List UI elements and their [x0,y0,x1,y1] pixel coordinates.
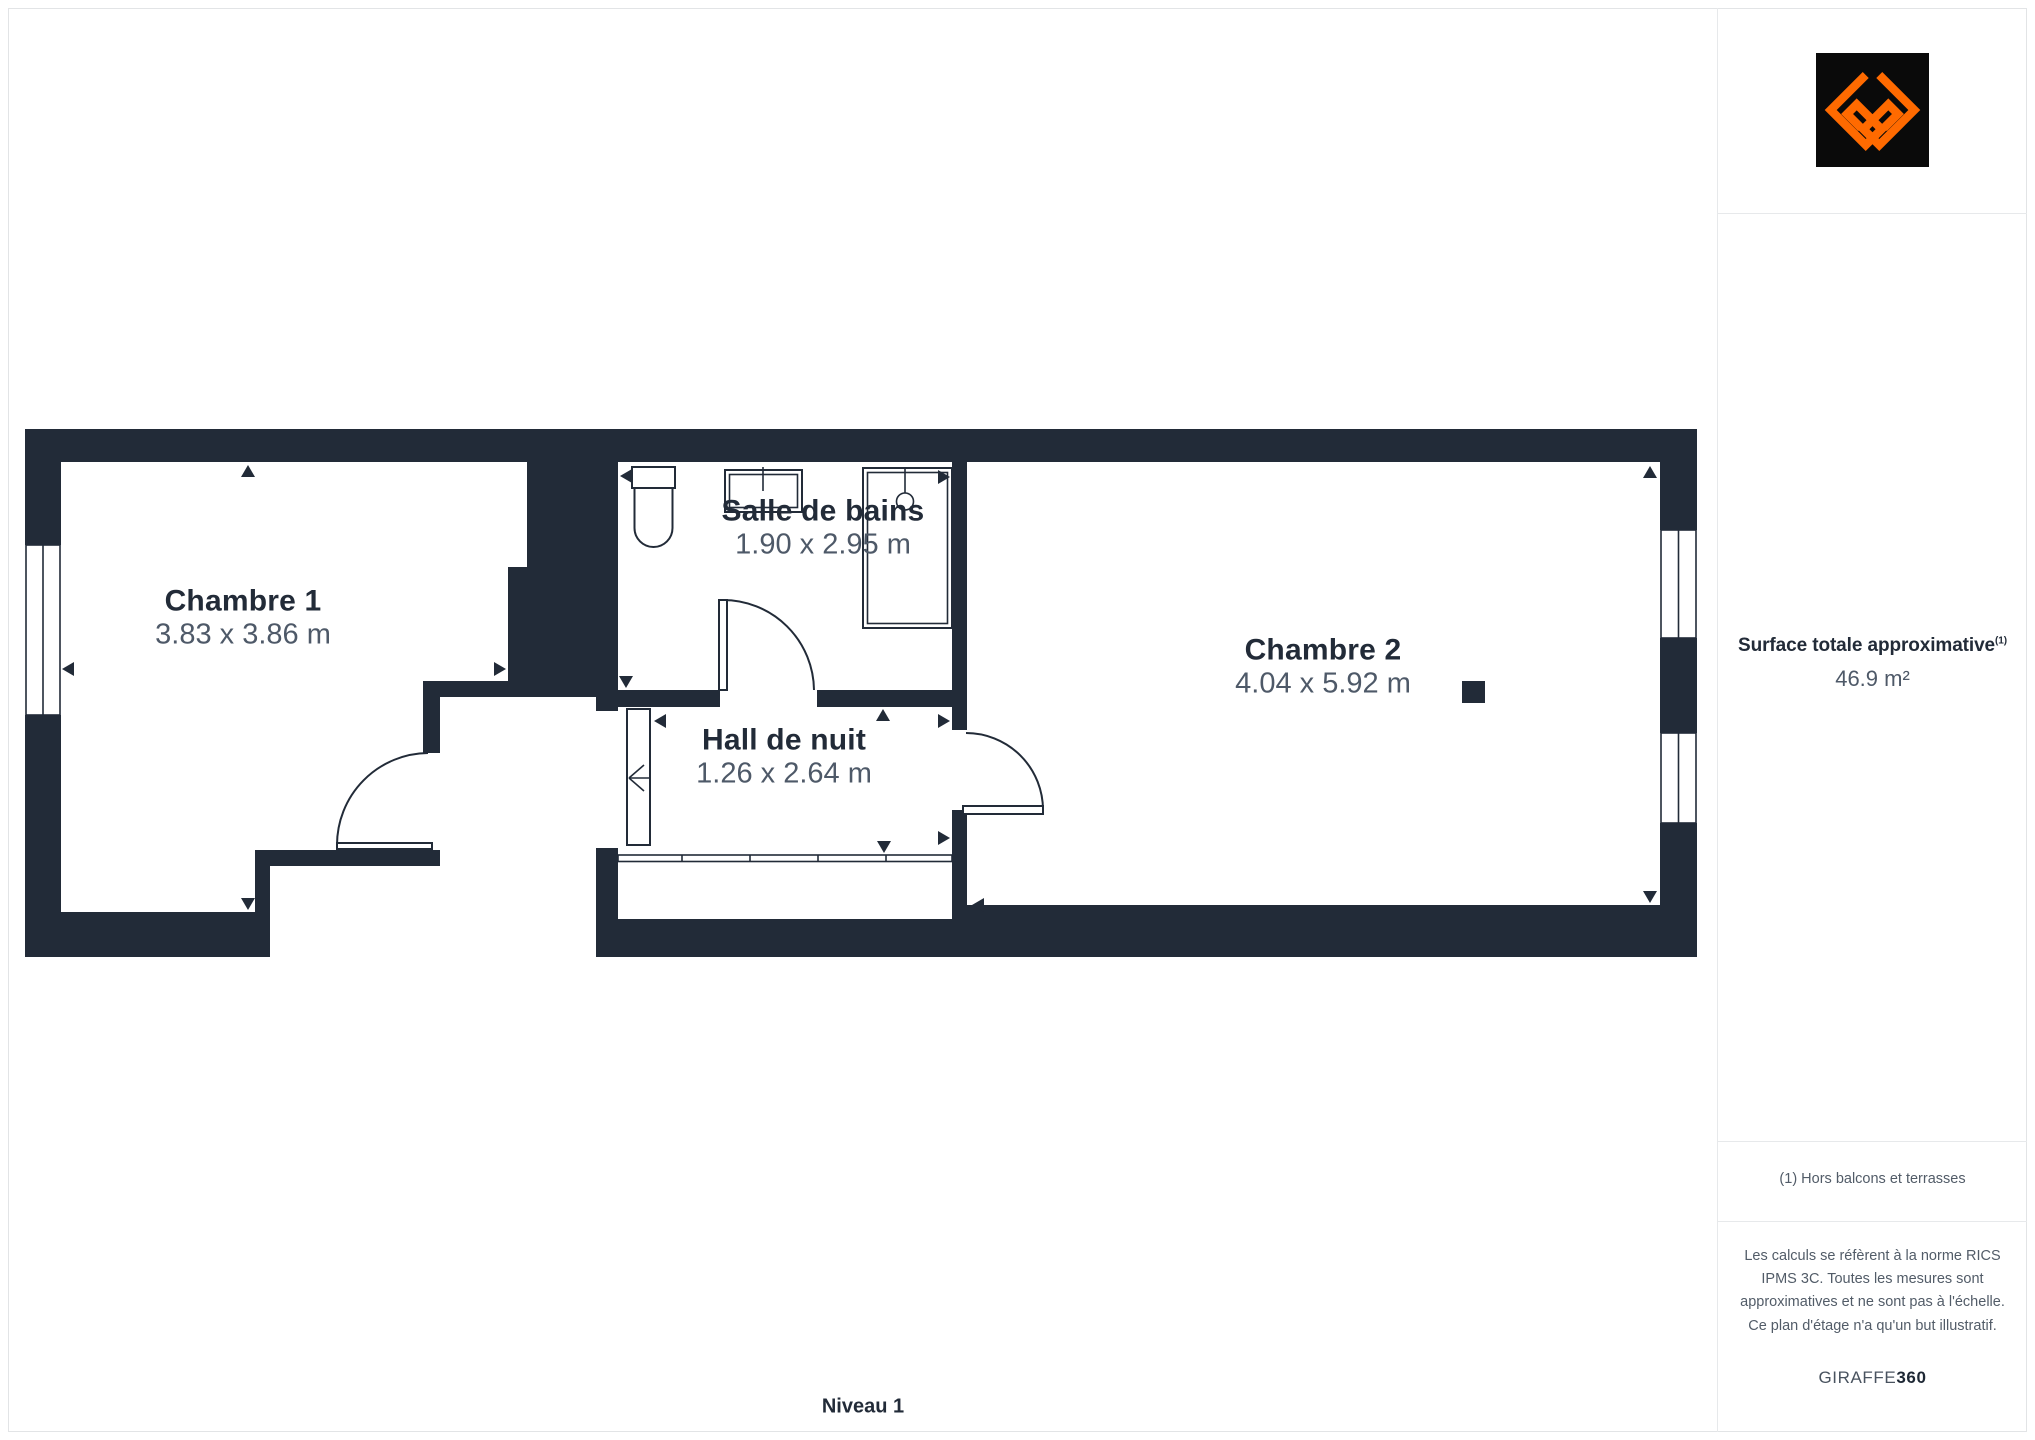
giraffe360-logo-icon [1816,53,1929,167]
column-marker [1462,681,1485,703]
room-label-chambre-1: Chambre 1 3.83 x 3.86 m [155,585,331,652]
brand-name: GIRAFFE [1818,1368,1896,1387]
room-dimensions: 1.90 x 2.95 m [722,529,925,562]
room-name: Hall de nuit [696,724,872,758]
sidebar-divider [1718,1141,2027,1142]
brand-wordmark: GIRAFFE360 [1718,1368,2027,1388]
brand-suffix: 360 [1896,1368,1926,1387]
room-dimensions: 1.26 x 2.64 m [696,758,872,791]
room-name: Chambre 1 [155,585,331,619]
footnote-text: (1) Hors balcons et terrasses [1718,1171,2027,1187]
room-label-hall-de-nuit: Hall de nuit 1.26 x 2.64 m [696,724,872,791]
info-sidebar: Surface totale approximative(1) 46.9 m² … [1717,8,2027,1432]
sidebar-divider [1718,1221,2027,1222]
room-name: Salle de bains [722,495,925,529]
stair-edge [618,855,952,862]
surface-total-text: Surface totale approximative [1738,635,1995,656]
surface-total-label: Surface totale approximative(1) [1718,635,2027,657]
room-dimensions: 3.83 x 3.86 m [155,619,331,652]
door-chambre-2 [963,733,1043,814]
door-hall-pocket [627,709,650,845]
floor-level-label: Niveau 1 [822,1396,904,1419]
room-dimensions: 4.04 x 5.92 m [1235,668,1411,701]
door-chambre-1 [337,753,432,849]
disclaimer-text: Les calculs se réfèrent à la norme RICS … [1732,1245,2014,1338]
sidebar-divider [1718,213,2027,214]
surface-footnote-marker: (1) [1995,636,2007,647]
room-name: Chambre 2 [1235,634,1411,668]
surface-total-block: Surface totale approximative(1) 46.9 m² [1718,635,2027,692]
door-salle-de-bains [719,600,814,690]
surface-total-value: 46.9 m² [1718,666,2027,692]
room-label-salle-de-bains: Salle de bains 1.90 x 2.95 m [722,495,925,562]
room-label-chambre-2: Chambre 2 4.04 x 5.92 m [1235,634,1411,701]
toilet-icon [632,467,675,547]
